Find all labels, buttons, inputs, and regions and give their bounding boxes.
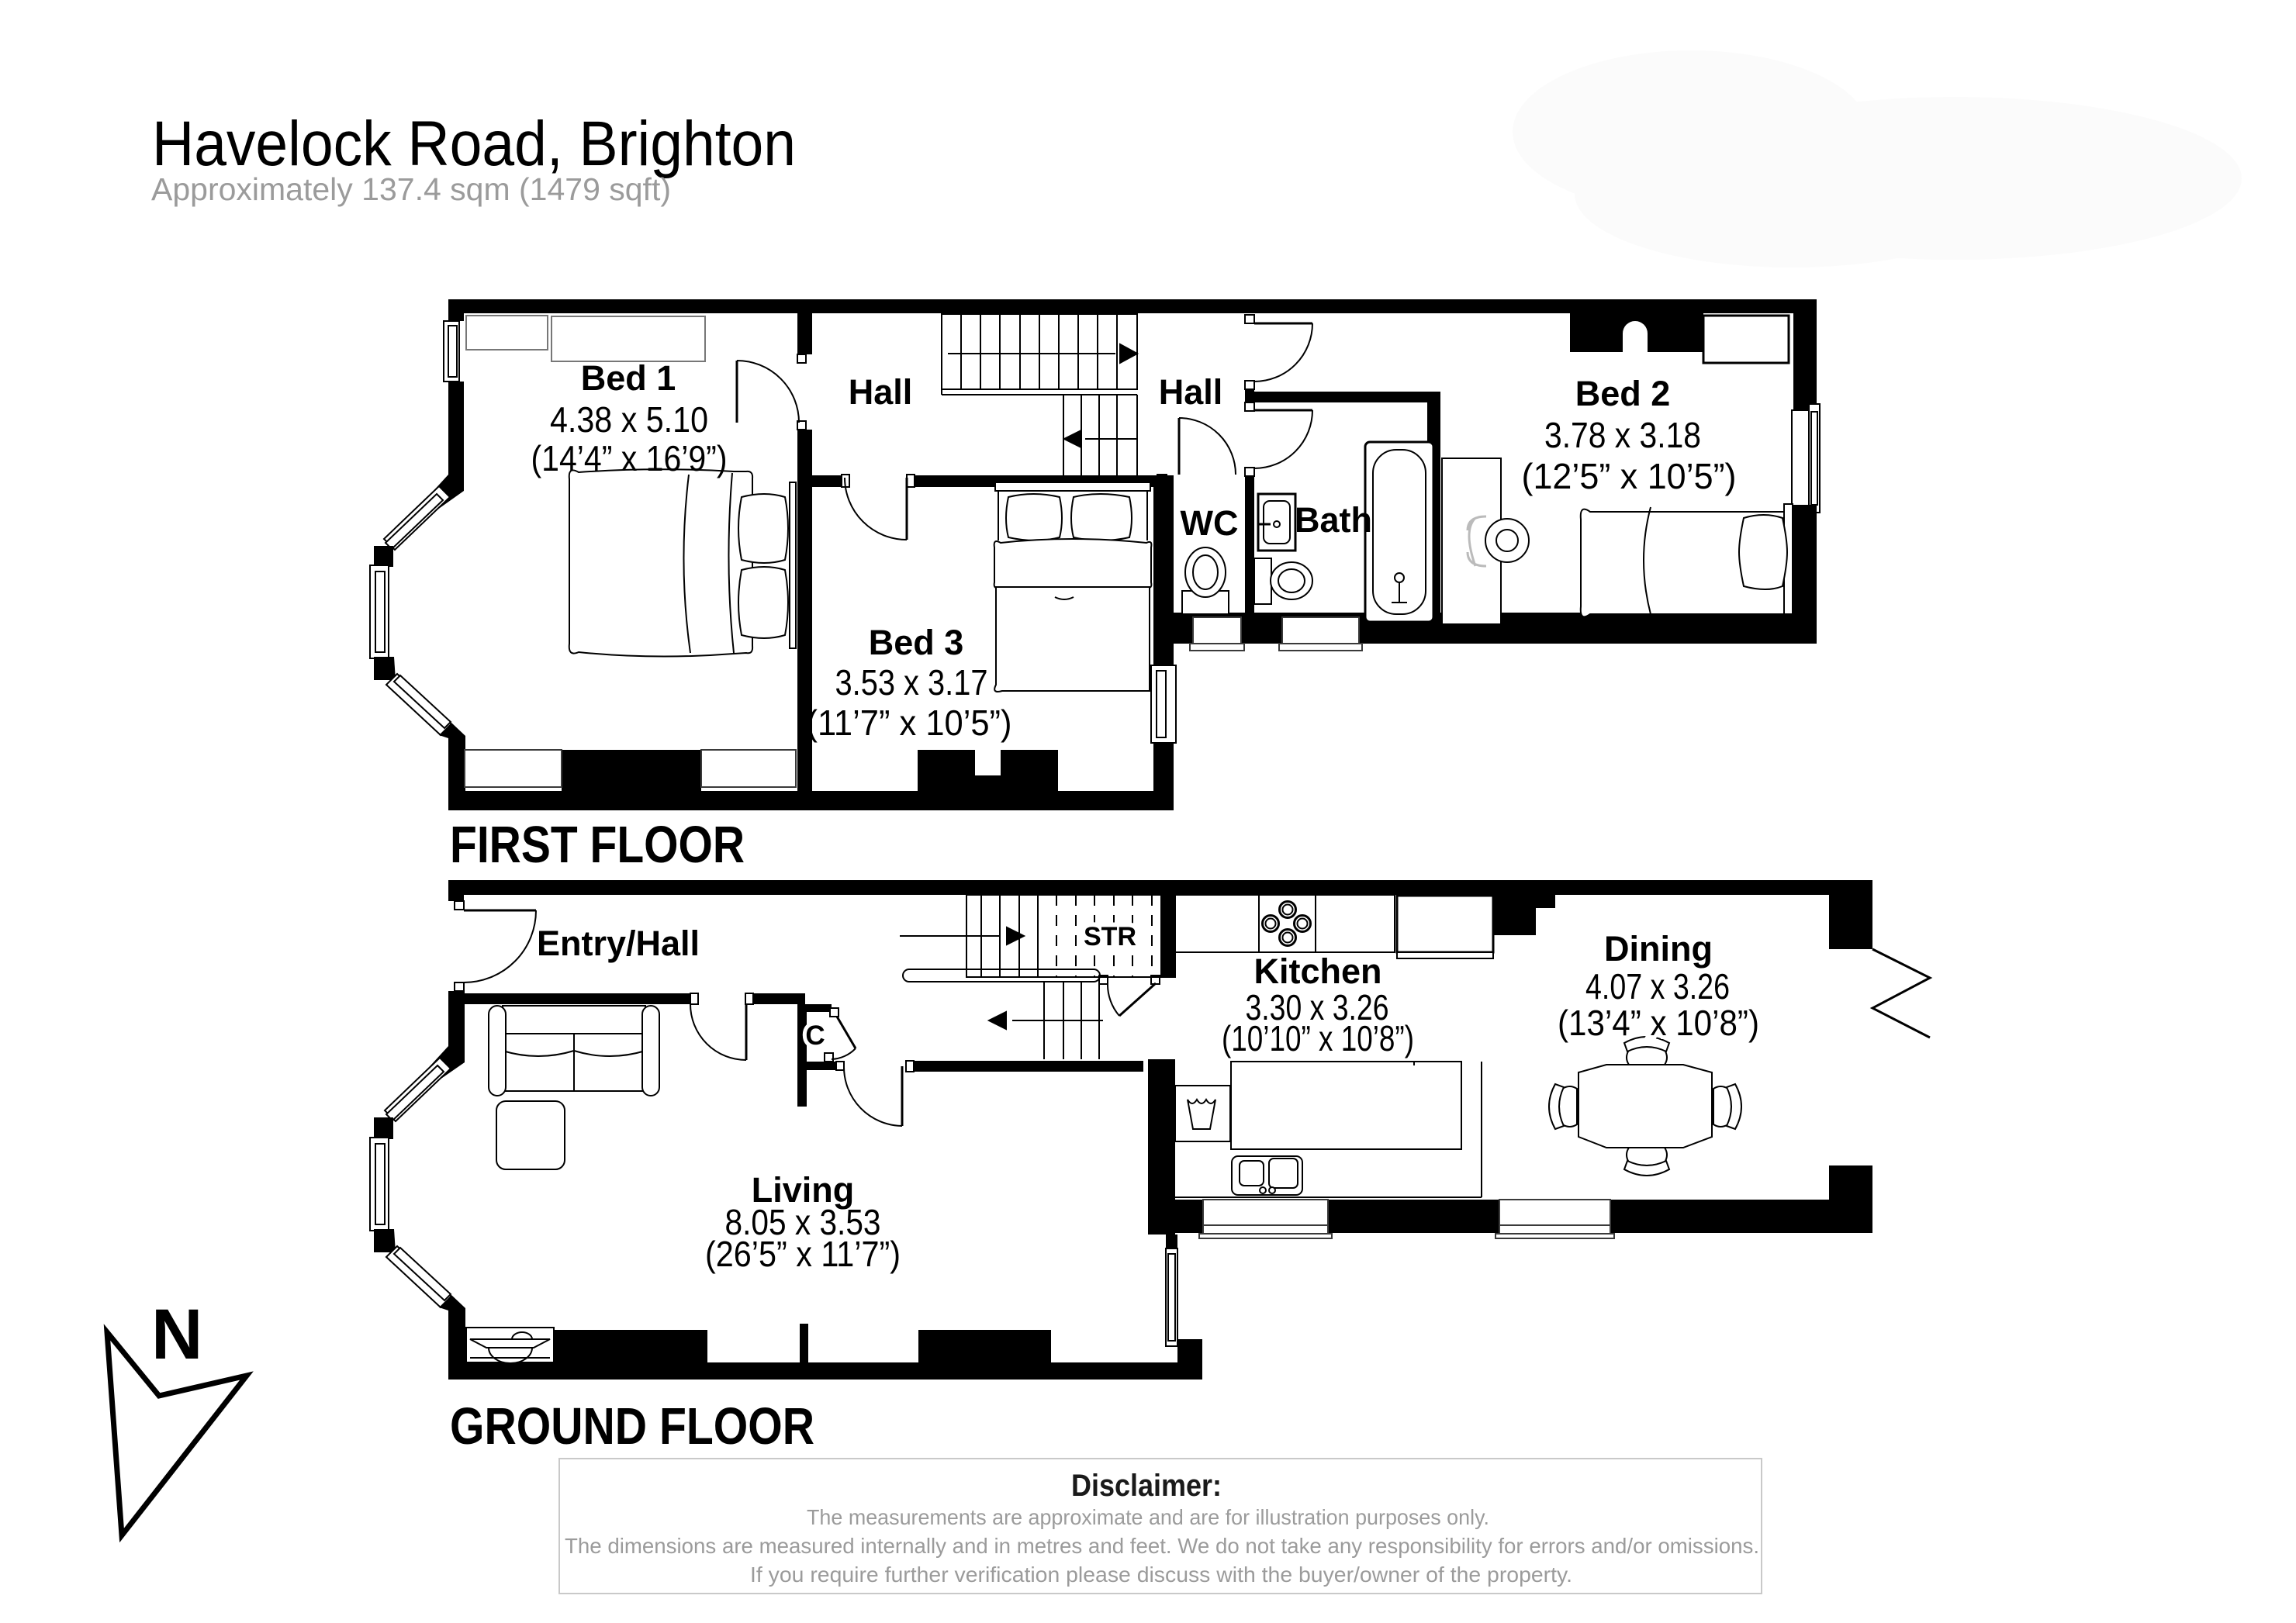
svg-text:GROUND FLOOR: GROUND FLOOR [450, 1397, 814, 1456]
svg-text:Havelock Road, Brighton: Havelock Road, Brighton [152, 109, 796, 179]
svg-text:(26’5” x 11’7”): (26’5” x 11’7”) [705, 1234, 901, 1274]
svg-text:(13’4” x 10’8”): (13’4” x 10’8”) [1558, 1003, 1759, 1043]
svg-text:Kitchen: Kitchen [1253, 951, 1381, 991]
svg-text:C: C [805, 1020, 825, 1051]
svg-text:4.07 x 3.26: 4.07 x 3.26 [1585, 966, 1730, 1007]
svg-text:(14’4” x 16’9”): (14’4” x 16’9”) [531, 438, 728, 478]
svg-text:3.78 x 3.18: 3.78 x 3.18 [1544, 415, 1701, 455]
svg-text:Bed 3: Bed 3 [869, 623, 964, 662]
svg-text:3.53 x 3.17: 3.53 x 3.17 [835, 662, 988, 703]
svg-text:The dimensions are measured in: The dimensions are measured internally a… [565, 1534, 1759, 1558]
svg-text:Bed 1: Bed 1 [581, 358, 676, 398]
svg-text:Dining: Dining [1604, 929, 1713, 969]
svg-text:(10’10” x 10’8”): (10’10” x 10’8”) [1222, 1018, 1414, 1058]
svg-text:4.38 x 5.10: 4.38 x 5.10 [550, 399, 708, 440]
svg-text:Disclaimer:: Disclaimer: [1071, 1469, 1222, 1503]
svg-text:(11’7” x 10’5”): (11’7” x 10’5”) [807, 703, 1012, 743]
svg-text:STR: STR [1084, 922, 1136, 951]
svg-text:Bath: Bath [1295, 500, 1372, 540]
svg-text:The measurements are approxima: The measurements are approximate and are… [807, 1505, 1489, 1529]
svg-text:WC: WC [1181, 503, 1239, 543]
svg-text:Entry/Hall: Entry/Hall [537, 924, 700, 963]
svg-text:N: N [151, 1295, 202, 1374]
svg-text:Hall: Hall [1159, 372, 1223, 412]
svg-text:Approximately 137.4 sqm (1479: Approximately 137.4 sqm (1479 sqft) [151, 171, 671, 207]
svg-text:If you require further verific: If you require further verification plea… [750, 1563, 1572, 1587]
svg-text:Hall: Hall [849, 372, 913, 412]
svg-text:Bed 2: Bed 2 [1575, 374, 1671, 413]
svg-text:FIRST FLOOR: FIRST FLOOR [450, 816, 745, 874]
svg-text:(12’5” x 10’5”): (12’5” x 10’5”) [1522, 456, 1737, 496]
